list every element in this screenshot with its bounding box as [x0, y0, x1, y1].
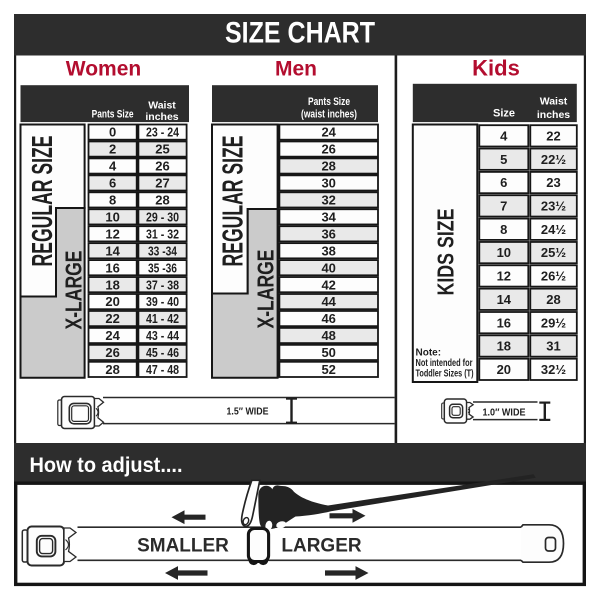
- svg-text:Size: Size: [493, 107, 515, 119]
- svg-text:Waist: Waist: [148, 100, 176, 112]
- svg-text:Toddler Sizes (T): Toddler Sizes (T): [416, 368, 474, 379]
- svg-text:35 -36: 35 -36: [148, 260, 177, 275]
- svg-text:22: 22: [546, 128, 560, 143]
- svg-text:KIDS SIZE: KIDS SIZE: [433, 209, 459, 296]
- svg-text:Waist: Waist: [540, 96, 568, 108]
- svg-text:28: 28: [546, 292, 560, 307]
- svg-text:33 -34: 33 -34: [148, 243, 178, 258]
- svg-text:Pants Size: Pants Size: [308, 96, 350, 108]
- svg-text:24: 24: [105, 328, 120, 343]
- svg-text:25: 25: [155, 142, 169, 157]
- svg-text:52: 52: [321, 362, 335, 377]
- svg-text:Pants Size: Pants Size: [92, 108, 134, 120]
- svg-text:31 - 32: 31 - 32: [146, 226, 179, 241]
- svg-text:7: 7: [500, 199, 507, 214]
- svg-text:40: 40: [321, 260, 335, 275]
- svg-text:How to adjust....: How to adjust....: [30, 454, 183, 477]
- svg-text:12: 12: [105, 226, 119, 241]
- svg-text:1.0″ WIDE: 1.0″ WIDE: [483, 407, 526, 418]
- svg-text:18: 18: [105, 277, 119, 292]
- svg-text:20: 20: [497, 362, 511, 377]
- svg-text:38: 38: [321, 243, 335, 258]
- svg-text:8: 8: [109, 193, 116, 208]
- svg-text:REGULAR SIZE: REGULAR SIZE: [217, 136, 249, 267]
- svg-text:4: 4: [109, 159, 117, 174]
- svg-text:LARGER: LARGER: [281, 535, 362, 556]
- svg-text:29 - 30: 29 - 30: [146, 209, 179, 224]
- svg-text:Not intended for: Not intended for: [416, 358, 473, 369]
- svg-text:8: 8: [500, 222, 507, 237]
- svg-text:45 - 46: 45 - 46: [146, 345, 179, 360]
- svg-text:28: 28: [321, 159, 335, 174]
- svg-text:41 - 42: 41 - 42: [146, 311, 179, 326]
- svg-text:28: 28: [105, 362, 119, 377]
- svg-text:42: 42: [321, 277, 335, 292]
- svg-text:20: 20: [105, 294, 119, 309]
- svg-text:26: 26: [105, 345, 119, 360]
- svg-text:46: 46: [321, 311, 335, 326]
- svg-text:SMALLER: SMALLER: [137, 535, 229, 556]
- svg-text:12: 12: [497, 269, 511, 284]
- svg-text:23 - 24: 23 - 24: [146, 125, 180, 140]
- svg-text:Women: Women: [66, 58, 141, 81]
- svg-text:34: 34: [321, 209, 336, 224]
- svg-text:16: 16: [105, 260, 119, 275]
- svg-text:37 - 38: 37 - 38: [146, 277, 179, 292]
- svg-text:23: 23: [546, 175, 560, 190]
- svg-text:X-LARGE: X-LARGE: [60, 251, 86, 330]
- svg-text:X-LARGE: X-LARGE: [253, 250, 279, 329]
- svg-text:25½: 25½: [541, 245, 566, 260]
- svg-text:16: 16: [497, 315, 511, 330]
- svg-text:30: 30: [321, 176, 335, 191]
- svg-text:10: 10: [497, 245, 511, 260]
- svg-text:5: 5: [500, 152, 507, 167]
- svg-text:inches: inches: [145, 111, 178, 123]
- svg-text:4: 4: [500, 128, 508, 143]
- svg-text:26: 26: [155, 159, 169, 174]
- svg-text:29½: 29½: [541, 315, 566, 330]
- svg-text:1.5″ WIDE: 1.5″ WIDE: [227, 405, 269, 417]
- svg-text:22: 22: [105, 311, 119, 326]
- svg-text:Note:: Note:: [416, 347, 442, 358]
- svg-text:SIZE CHART: SIZE CHART: [225, 17, 375, 50]
- svg-text:27: 27: [155, 176, 169, 191]
- svg-text:43 - 44: 43 - 44: [146, 328, 180, 343]
- svg-text:48: 48: [321, 328, 335, 343]
- svg-text:0: 0: [109, 125, 116, 140]
- svg-text:6: 6: [500, 175, 507, 190]
- svg-text:26½: 26½: [541, 269, 566, 284]
- svg-text:Men: Men: [275, 58, 317, 81]
- svg-text:24: 24: [321, 125, 336, 140]
- svg-text:22½: 22½: [541, 152, 566, 167]
- svg-text:24½: 24½: [541, 222, 566, 237]
- svg-text:31: 31: [546, 339, 560, 354]
- svg-text:23½: 23½: [541, 199, 566, 214]
- svg-text:14: 14: [105, 243, 120, 258]
- svg-text:50: 50: [321, 345, 335, 360]
- svg-text:Kids: Kids: [472, 56, 520, 81]
- svg-text:6: 6: [109, 176, 116, 191]
- svg-text:36: 36: [321, 226, 335, 241]
- svg-text:39 - 40: 39 - 40: [146, 294, 179, 309]
- svg-text:32: 32: [321, 193, 335, 208]
- svg-text:(waist inches): (waist inches): [301, 109, 357, 121]
- svg-text:REGULAR SIZE: REGULAR SIZE: [27, 136, 59, 267]
- svg-text:18: 18: [497, 339, 511, 354]
- svg-text:47 - 48: 47 - 48: [146, 362, 179, 377]
- svg-text:inches: inches: [537, 109, 570, 121]
- svg-text:10: 10: [105, 209, 119, 224]
- svg-text:26: 26: [321, 142, 335, 157]
- svg-text:14: 14: [497, 292, 512, 307]
- svg-text:2: 2: [109, 142, 116, 157]
- svg-text:32½: 32½: [541, 362, 566, 377]
- svg-text:44: 44: [321, 294, 336, 309]
- svg-text:28: 28: [155, 193, 169, 208]
